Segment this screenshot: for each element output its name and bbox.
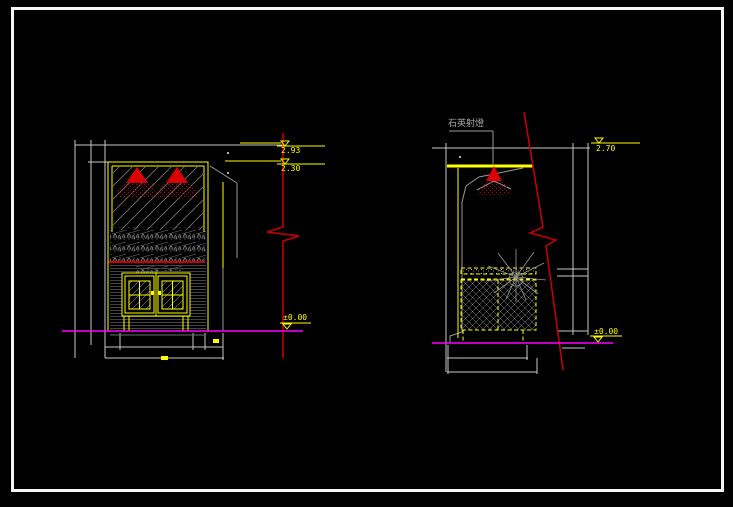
- cad-vector-layer: [0, 0, 733, 507]
- fixture-label: 石英射燈: [448, 120, 484, 129]
- dimension-text-mark: [161, 356, 168, 360]
- elevation-value-left-ground: ±0.00: [283, 314, 307, 322]
- dimension-text-mark: [213, 339, 219, 343]
- mirror-hatch: [113, 167, 203, 230]
- tick-specks: [227, 152, 229, 174]
- downlight-icon: [477, 166, 511, 196]
- elevation-value-left-top: 2.93: [281, 147, 300, 155]
- elevation-value-right-top: 2.70: [596, 145, 615, 153]
- elevation-value-left-mid: 2.30: [281, 165, 300, 173]
- elevation-value-right-ground: ±0.00: [594, 328, 618, 336]
- break-line: [524, 112, 563, 370]
- dimension-lines: [432, 143, 590, 374]
- tick-specks: [459, 156, 461, 158]
- elevation-marker-symbols: [590, 138, 640, 342]
- cad-drawing-canvas: 2.93 2.30 ±0.00 石英射燈 2.70 ±0.00: [0, 0, 733, 507]
